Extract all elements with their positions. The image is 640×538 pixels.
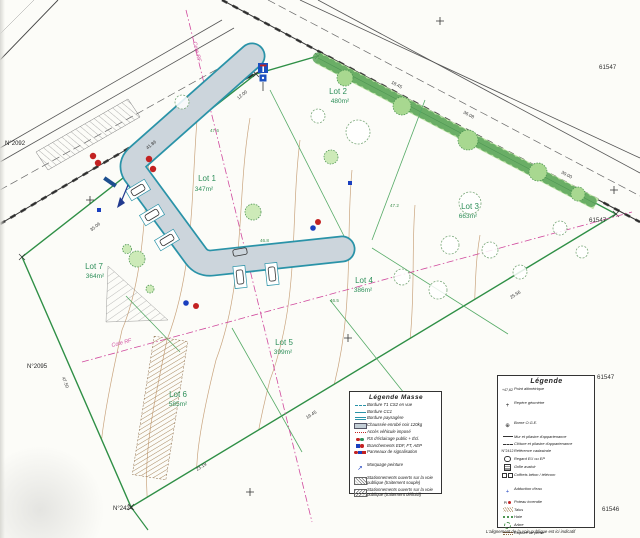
- svg-text:47.2: 47.2: [390, 203, 399, 208]
- wall-line-icon: [503, 436, 513, 437]
- slope-hatch-icon: [503, 507, 513, 512]
- lot3-area: 663m²: [459, 213, 478, 220]
- lot3-label: Lot 3: [461, 202, 479, 211]
- parcel-n2095: N°2095: [27, 364, 48, 370]
- utility-boxes-icon: [501, 473, 514, 478]
- parcel-n2092: N°2092: [5, 141, 26, 147]
- cadastral-ref-icon: N°2412: [501, 449, 513, 453]
- network-icons: [353, 444, 367, 447]
- hedge-line-icon: [503, 516, 513, 518]
- culvert-bar: [103, 176, 117, 187]
- svg-text:25.56: 25.56: [509, 289, 522, 300]
- lighting-icons: [353, 438, 367, 441]
- lot2-area: 480m²: [331, 98, 350, 105]
- scan-edge-shadow: [0, 0, 5, 538]
- svg-text:46.8: 46.8: [260, 238, 269, 243]
- svg-text:46.5: 46.5: [330, 298, 339, 303]
- site-plan-sheet: Lot 1 347m² Lot 2 480m² Lot 3 663m² Lot …: [0, 0, 640, 538]
- lot2-label: Lot 2: [329, 87, 347, 96]
- water-connection-icon: [506, 480, 509, 498]
- svg-text:47.6: 47.6: [210, 128, 219, 133]
- parking-hatch2-icon: [354, 489, 367, 497]
- legend-masse-title: Légende Masse: [353, 394, 439, 401]
- marking-arrow-icon: [357, 457, 362, 475]
- svg-text:19.45: 19.45: [305, 409, 318, 420]
- lot7-label: Lot 7: [85, 262, 103, 271]
- svg-text:30.00: 30.00: [560, 170, 573, 180]
- scan-smudge: [0, 440, 110, 538]
- alignment-note: L'alignement de la voie publique est ici…: [486, 529, 638, 534]
- grid-number-legend: 61547: [597, 374, 615, 381]
- traffic-sign-icons: [353, 451, 367, 454]
- survey-cross-icon: [506, 394, 510, 412]
- grid-number-mid: 61547: [589, 217, 607, 224]
- svg-text:18.45: 18.45: [390, 80, 403, 90]
- road-surface-swatch-icon: [354, 423, 367, 429]
- grid-number-top: 61547: [599, 64, 617, 71]
- lot5-area: 399m²: [274, 349, 293, 356]
- talus-hatch: [132, 336, 187, 480]
- lot1-area: 347m²: [195, 186, 214, 193]
- svg-text:12.00: 12.00: [236, 89, 248, 101]
- lot1-label: Lot 1: [198, 174, 216, 183]
- parcel-n2424: N°2424: [113, 506, 134, 512]
- lot7-area: 364m²: [86, 273, 105, 280]
- lot4-label: Lot 4: [355, 276, 373, 285]
- oge-borne-icon: [505, 414, 510, 432]
- lot4-area: 386m²: [354, 287, 373, 294]
- teal-double-line-icon: [355, 417, 366, 420]
- svg-text:35.06: 35.06: [89, 221, 101, 232]
- reserved-hatch-zone: [106, 266, 168, 322]
- lot6-label: Lot 6: [169, 390, 187, 399]
- lot5-label: Lot 5: [275, 338, 293, 347]
- teal-solid-line-icon: [355, 412, 366, 413]
- svg-text:Cote RF: Cote RF: [111, 338, 133, 349]
- parking-hatch-icon: [354, 477, 367, 485]
- one-way-arrow-icon: [117, 185, 128, 208]
- spot-elevation-icon: +47,62: [502, 388, 513, 392]
- manhole-icon: [504, 456, 511, 463]
- lot6-area: 585m²: [169, 401, 188, 408]
- teal-dashed-line-icon: [355, 405, 366, 406]
- svg-text:36.08: 36.08: [462, 110, 475, 120]
- svg-text:47.50: 47.50: [61, 376, 70, 389]
- gully-grate-icon: [504, 464, 511, 471]
- fire-hydrant-icon: PI: [504, 501, 507, 505]
- red-dotted-line-icon: [355, 432, 366, 433]
- legend-masse-box: Légende Masse Bordure T1 CS2 en vue Bord…: [349, 391, 442, 494]
- fence-line-icon: [503, 444, 513, 445]
- grid-number-bottom: 61546: [602, 506, 620, 513]
- legend-box: Légende +47,62Point altimétrique Repère …: [497, 375, 595, 528]
- tree-symbol-icon: [504, 522, 511, 529]
- legend-title: Légende: [501, 378, 592, 385]
- dead-end-sign-icon: [258, 63, 268, 91]
